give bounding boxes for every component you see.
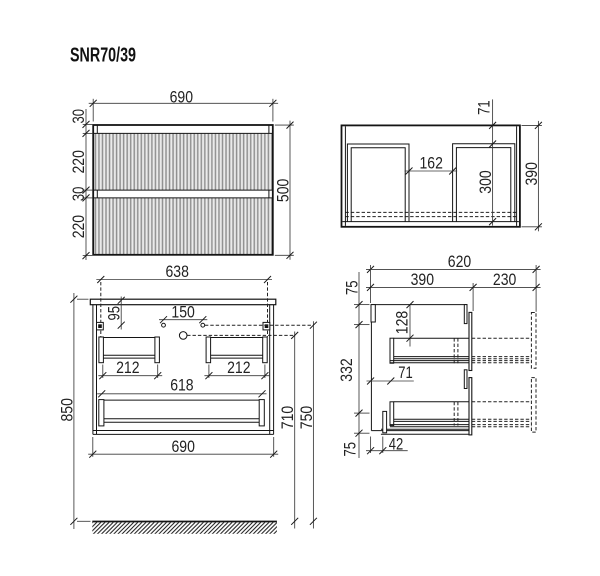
svg-text:638: 638 [166, 263, 189, 281]
svg-text:128: 128 [393, 311, 411, 334]
svg-text:42: 42 [389, 436, 404, 454]
svg-text:SNR70/39: SNR70/39 [70, 44, 136, 67]
svg-text:332: 332 [338, 358, 356, 381]
svg-text:390: 390 [523, 162, 541, 185]
svg-text:620: 620 [448, 253, 471, 271]
svg-text:850: 850 [58, 398, 76, 421]
svg-text:95: 95 [106, 306, 124, 321]
svg-text:690: 690 [172, 438, 195, 456]
svg-text:150: 150 [171, 303, 194, 321]
svg-text:220: 220 [70, 150, 88, 173]
svg-text:690: 690 [170, 89, 193, 107]
svg-text:71: 71 [476, 100, 494, 115]
svg-text:750: 750 [298, 406, 316, 429]
svg-text:212: 212 [116, 359, 139, 377]
svg-text:75: 75 [343, 280, 361, 295]
svg-text:230: 230 [493, 271, 516, 289]
svg-text:30: 30 [70, 109, 88, 124]
svg-text:390: 390 [411, 271, 434, 289]
svg-text:220: 220 [70, 215, 88, 238]
svg-text:618: 618 [170, 377, 193, 395]
svg-text:162: 162 [420, 154, 443, 172]
svg-text:75: 75 [341, 442, 359, 457]
svg-text:710: 710 [279, 406, 297, 429]
svg-text:71: 71 [398, 364, 413, 382]
svg-text:212: 212 [227, 359, 250, 377]
svg-text:300: 300 [477, 170, 495, 193]
svg-text:500: 500 [274, 179, 292, 202]
svg-text:30: 30 [70, 187, 88, 202]
